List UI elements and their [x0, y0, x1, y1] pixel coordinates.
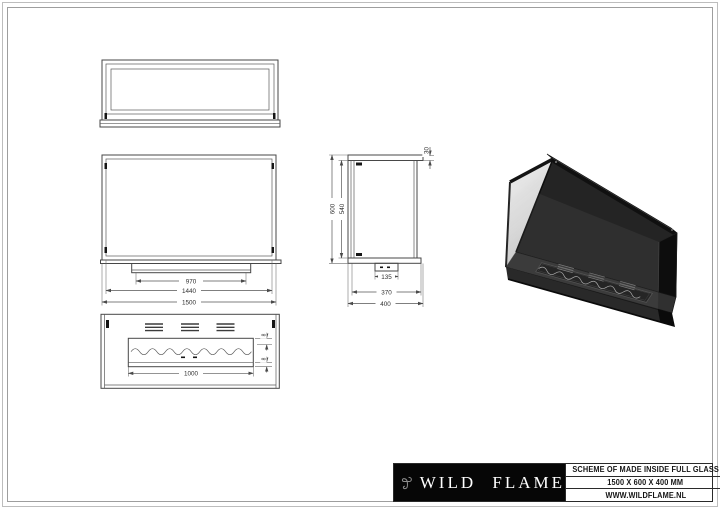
- dim-540: 540: [339, 203, 346, 214]
- hinge-mark: [273, 113, 276, 119]
- dim-600: 600: [329, 203, 336, 214]
- dim-1440: 1440: [182, 288, 197, 295]
- dim-1000: 1000: [184, 371, 199, 378]
- dim-tray-lip-bottom: 8: [261, 357, 267, 360]
- dim-400: 400: [380, 301, 391, 308]
- hinge-mark: [272, 247, 275, 253]
- title-block: WILD FLAME SCHEME OF MADE INSIDE FULL GL…: [393, 463, 713, 502]
- brand-panel: WILD FLAME: [394, 464, 565, 501]
- dim-370: 370: [381, 289, 392, 296]
- website-url: WWW.WILDFLAME.NL: [605, 491, 686, 500]
- hinge-mark: [356, 163, 362, 166]
- title-block-info: SCHEME OF MADE INSIDE FULL GLASS 1500 X …: [565, 464, 720, 501]
- bottom-view: 1000 8 8: [95, 310, 295, 392]
- side-view: 135 370 400 600 540: [320, 140, 450, 315]
- top-view: [95, 55, 290, 135]
- hinge-mark: [105, 113, 108, 119]
- vent-grilles: [145, 324, 235, 331]
- drawing-sheet: 970 1440 1500 135: [0, 0, 720, 509]
- wildflame-logo-icon: [401, 467, 413, 499]
- brand-name: WILD FLAME: [420, 473, 565, 493]
- scheme-title-row: SCHEME OF MADE INSIDE FULL GLASS: [566, 464, 720, 477]
- front-view: 970 1440 1500: [95, 150, 295, 310]
- dim-135: 135: [381, 274, 392, 281]
- dim-1500: 1500: [182, 299, 197, 306]
- overall-dimensions: 1500 X 600 X 400 MM: [608, 478, 684, 487]
- hinge-mark: [105, 247, 108, 253]
- hinge-mark: [106, 320, 109, 328]
- dimensions-row: 1500 X 600 X 400 MM: [566, 477, 720, 490]
- isometric-view: [488, 138, 718, 363]
- burner-box: [375, 263, 398, 271]
- hinge-mark: [356, 253, 362, 256]
- scheme-title: SCHEME OF MADE INSIDE FULL GLASS: [572, 465, 719, 474]
- dim-970: 970: [186, 278, 197, 285]
- website-row: WWW.WILDFLAME.NL: [566, 489, 720, 501]
- hinge-mark: [105, 163, 108, 169]
- burner-tray: [132, 264, 251, 273]
- hinge-mark: [272, 163, 275, 169]
- dim-tray-lip-top: 8: [261, 333, 267, 336]
- flame-wave-line: [131, 349, 251, 355]
- dim-30: 30: [423, 147, 430, 155]
- hinge-mark: [272, 320, 275, 328]
